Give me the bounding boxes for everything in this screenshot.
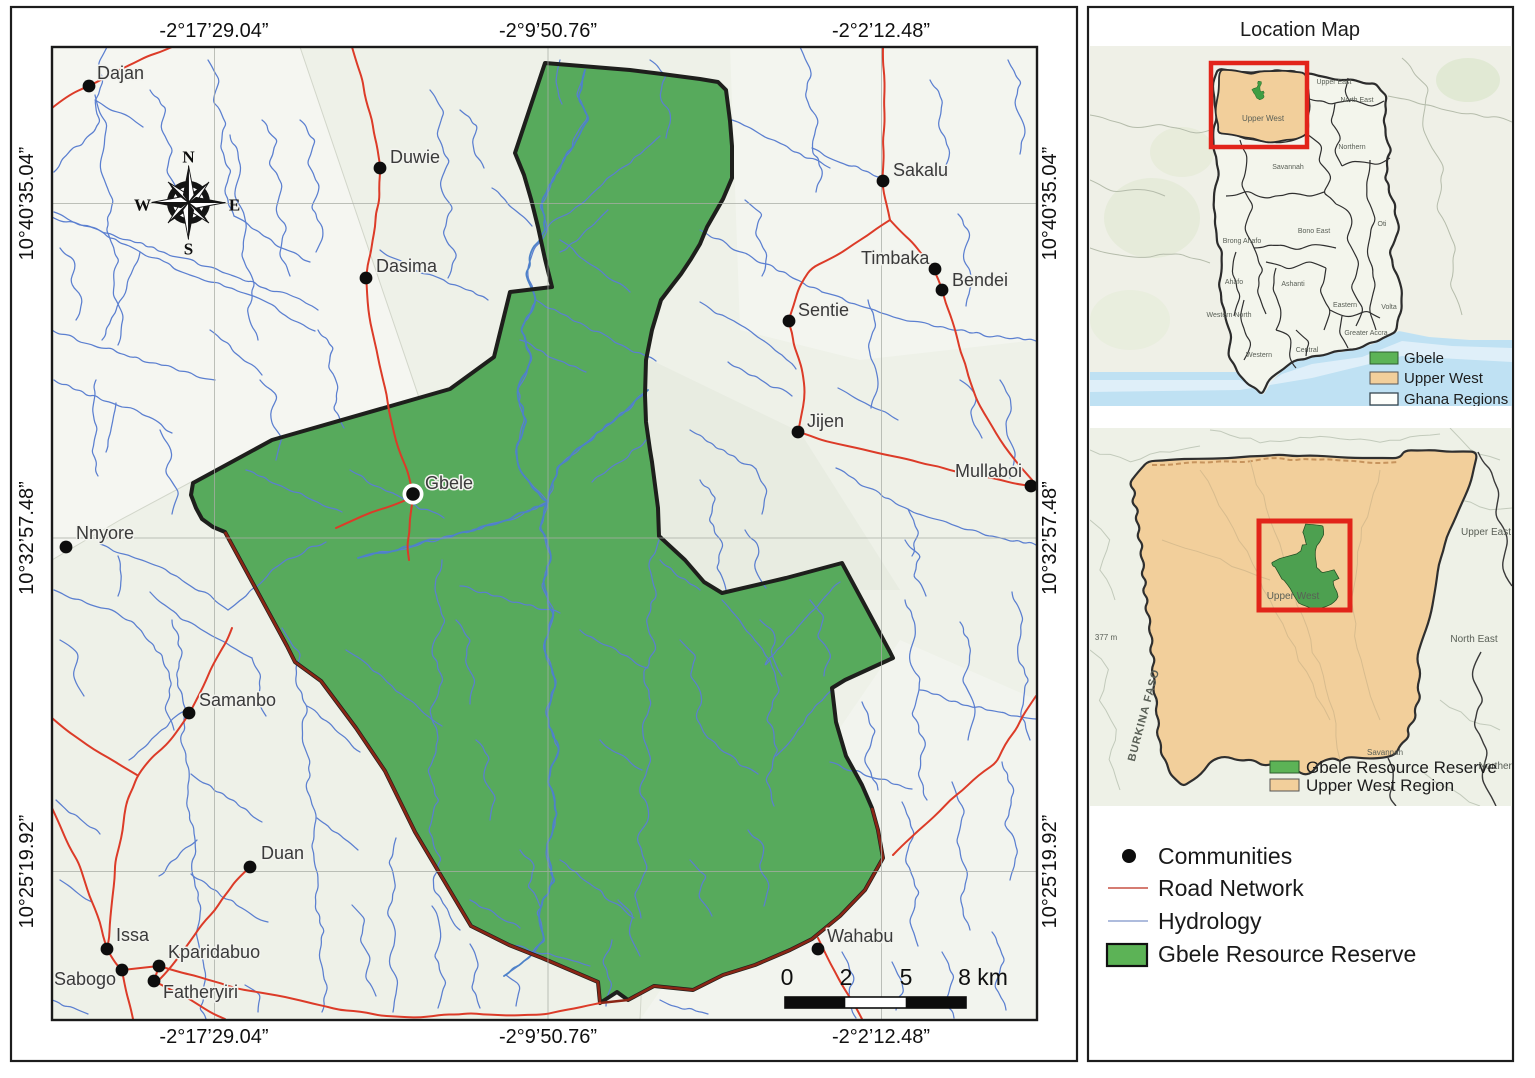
svg-text:Central: Central [1296,347,1319,354]
svg-text:Duan: Duan [261,843,304,863]
svg-text:North East: North East [1340,97,1373,104]
svg-text:Issa: Issa [116,925,150,945]
svg-text:Dajan: Dajan [97,63,144,83]
svg-text:Savannah: Savannah [1272,164,1304,171]
svg-text:10°32’57.48”: 10°32’57.48” [16,481,38,595]
svg-text:Samanbo: Samanbo [199,690,276,710]
svg-text:-2°9’50.76”: -2°9’50.76” [499,1026,597,1048]
svg-text:N: N [182,148,195,167]
svg-text:-2°2’12.48”: -2°2’12.48” [832,1026,930,1048]
svg-text:Ahafo: Ahafo [1225,279,1243,286]
svg-text:Oti: Oti [1378,221,1387,228]
svg-text:5: 5 [900,964,913,990]
svg-text:Bono East: Bono East [1298,228,1330,235]
svg-text:10°25’19.92”: 10°25’19.92” [16,815,38,929]
svg-text:0: 0 [781,964,794,990]
svg-text:Nnyore: Nnyore [76,523,134,543]
svg-text:Bendei: Bendei [952,270,1008,290]
svg-text:S: S [184,240,193,259]
svg-text:Upper West: Upper West [1404,370,1484,387]
svg-text:Jijen: Jijen [807,411,844,431]
svg-text:Sakalu: Sakalu [893,160,948,180]
svg-text:Upper East: Upper East [1316,79,1351,86]
svg-text:Sentie: Sentie [798,300,849,320]
svg-text:Ghana Regions: Ghana Regions [1404,391,1508,408]
svg-text:Location Map: Location Map [1240,19,1360,41]
svg-text:Ashanti: Ashanti [1281,281,1305,288]
svg-text:Northern: Northern [1338,144,1365,151]
svg-text:10°25’19.92”: 10°25’19.92” [1039,815,1061,929]
svg-text:10°40’35.04”: 10°40’35.04” [16,147,38,261]
svg-text:Duwie: Duwie [390,147,440,167]
svg-text:Volta: Volta [1381,304,1397,311]
svg-text:-2°9’50.76”: -2°9’50.76” [499,20,597,42]
svg-text:Brong Ahafo: Brong Ahafo [1223,238,1262,245]
svg-text:2: 2 [840,964,853,990]
svg-text:Upper West: Upper West [1267,591,1320,602]
svg-text:Greater Accra: Greater Accra [1344,330,1387,337]
svg-text:10°40’35.04”: 10°40’35.04” [1039,147,1061,261]
svg-text:Gbele: Gbele [1404,350,1444,367]
svg-text:10°32’57.48”: 10°32’57.48” [1039,481,1061,595]
svg-text:Upper West Region: Upper West Region [1306,776,1454,795]
svg-text:Wahabu: Wahabu [827,926,893,946]
svg-text:-2°2’12.48”: -2°2’12.48” [832,20,930,42]
svg-text:North East: North East [1450,634,1497,645]
svg-text:Gbele Resource Reserve: Gbele Resource Reserve [1158,941,1416,967]
svg-text:Upper West: Upper West [1242,114,1285,123]
svg-text:Western North: Western North [1207,312,1252,319]
svg-text:Road Network: Road Network [1158,875,1304,901]
svg-text:Gbele: Gbele [425,473,473,493]
svg-text:Timbaka: Timbaka [861,248,930,268]
svg-text:Communities: Communities [1158,843,1292,869]
svg-text:Hydrology: Hydrology [1158,908,1262,934]
svg-text:Savannah: Savannah [1367,748,1403,757]
svg-text:Fatheryiri: Fatheryiri [163,982,238,1002]
svg-text:Eastern: Eastern [1333,302,1357,309]
svg-text:377 m: 377 m [1095,633,1118,642]
svg-text:Upper East: Upper East [1461,527,1511,538]
svg-text:8 km: 8 km [958,964,1008,990]
svg-text:Kparidabuo: Kparidabuo [168,942,260,962]
svg-text:Mullaboi: Mullaboi [955,461,1022,481]
svg-text:-2°17’29.04”: -2°17’29.04” [159,1026,268,1048]
svg-text:Dasima: Dasima [376,256,438,276]
svg-text:Western: Western [1246,352,1272,359]
svg-text:Gbele Resource Reserve: Gbele Resource Reserve [1306,758,1497,777]
svg-text:-2°17’29.04”: -2°17’29.04” [159,20,268,42]
svg-text:Sabogo: Sabogo [54,969,116,989]
svg-text:W: W [134,196,151,215]
svg-text:E: E [229,196,240,215]
